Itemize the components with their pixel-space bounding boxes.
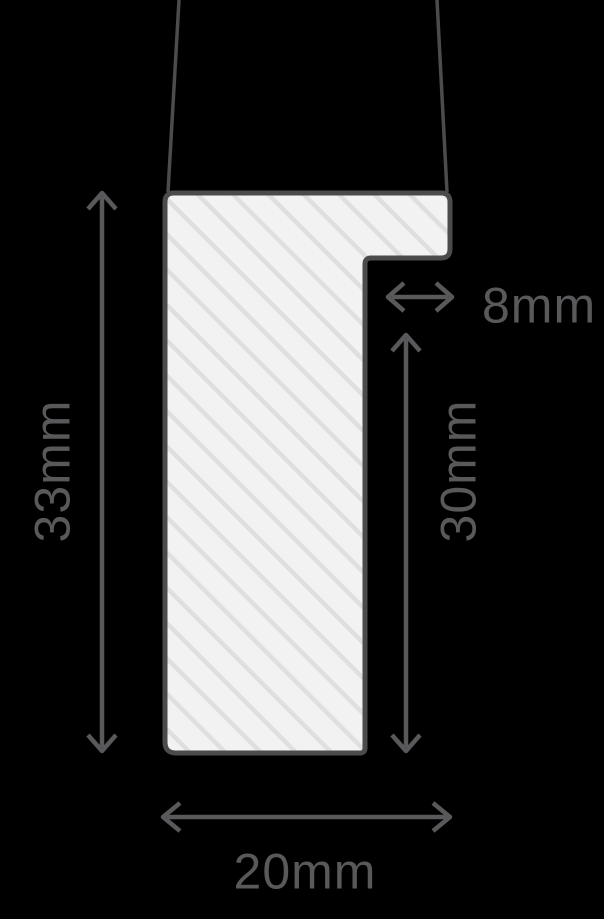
moulding-cross-section-diagram: 33mm 8mm 30mm 20mm: [0, 0, 604, 919]
bottom-width-label: 20mm: [234, 844, 377, 900]
left-height-label: 33mm: [25, 400, 81, 543]
right-height-label: 30mm: [431, 400, 487, 543]
diagram-canvas: 33mm 8mm 30mm 20mm: [0, 0, 604, 919]
rebate-width-label: 8mm: [482, 278, 596, 334]
